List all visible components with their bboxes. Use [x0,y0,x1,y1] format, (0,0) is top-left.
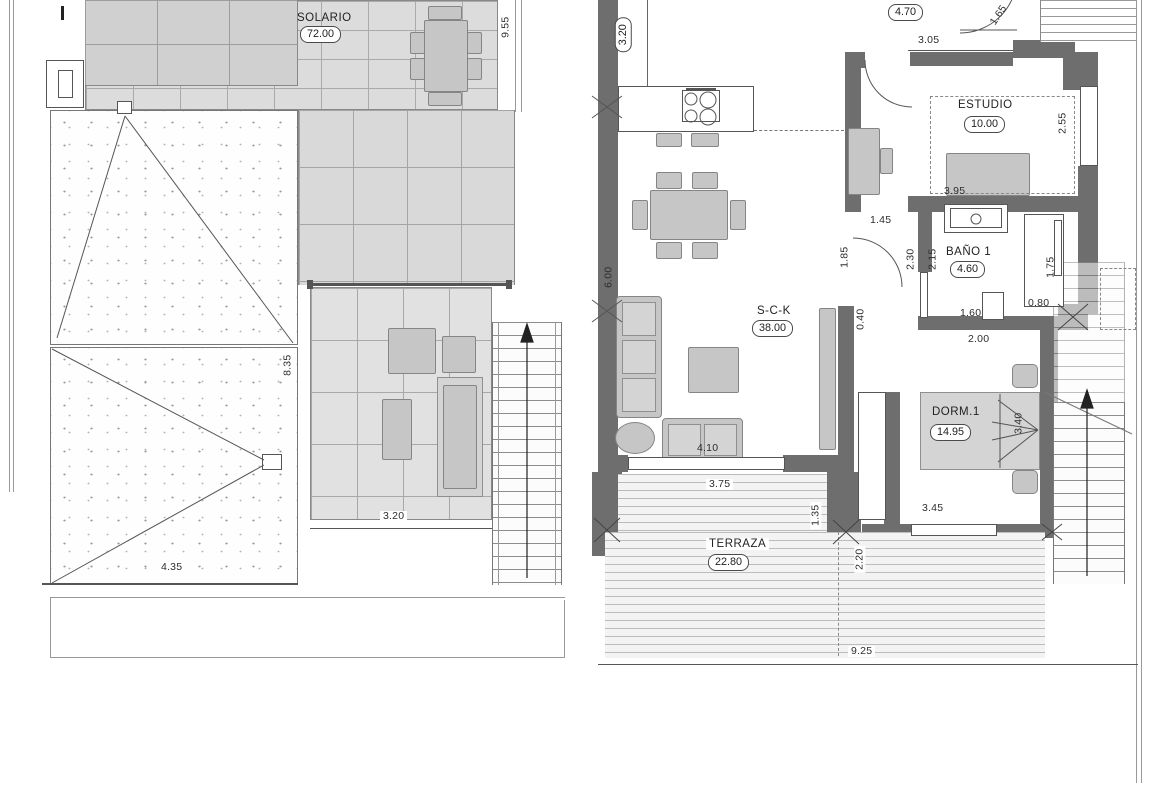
toilet [982,292,1004,320]
bar-stool [656,133,682,147]
room-label-terraza: TERRAZA [706,538,769,550]
stair-rail [555,322,556,585]
dim-9-25: 9.25 [848,646,875,657]
bar-stool [691,133,719,147]
dim-3-75: 3.75 [706,479,733,490]
area-label-terraza: 22.80 [708,554,749,571]
patio-chair [428,92,462,106]
wall-nib [845,196,861,212]
roof-edge-line [42,583,298,585]
sofa-cushion [622,378,656,412]
dim-3-20-top: 3.20 [615,17,632,52]
window-estudio [1080,86,1098,166]
patio-chair [467,32,482,54]
sofa-cushion [622,340,656,374]
dim-1-75: 1.75 [1045,257,1056,278]
lower-floor-outline-top [50,597,565,598]
wall-right-upper [1078,52,1098,86]
dim-2-00: 2.00 [968,334,989,345]
patio-chair [467,58,482,80]
room-label-sck: S-C-K [757,305,791,317]
dim-4-10: 4.10 [697,443,718,454]
patio-chair [410,58,425,80]
window-dorm [911,524,997,536]
plot-border-right-b [521,0,522,112]
dim-line-3-05 [908,50,1013,51]
area-label-sck: 38.00 [752,320,793,337]
vanity-basin [950,208,1002,228]
dim-line-9-25 [598,664,1138,665]
dim-2-30: 2.30 [905,249,916,270]
area-label-estudio: 10.00 [964,116,1005,133]
plot-border-right-outer [1136,0,1137,783]
staircase-right-lower [1053,402,1125,584]
staircase-left [492,322,562,585]
roof-apex-box [117,101,132,114]
dim-3-40: 3.40 [1013,413,1024,434]
exterior-dashed-zone [1100,268,1136,330]
sun-lounger-small [382,399,412,460]
wall-left [598,0,618,470]
glass-railing [310,283,512,286]
plot-border-right-a [515,0,516,112]
dim-0-40: 0.40 [855,309,866,330]
counter-dashed-edge [754,130,844,131]
area-label-solario: 72.00 [300,26,341,43]
dim-1-65: 1.65 [988,4,1009,27]
dining-chair [656,172,682,189]
dim-4-70: 4.70 [888,4,923,21]
entrance-steps [1040,0,1136,42]
dim-9-55: 9.55 [500,17,511,38]
pouf [615,422,655,454]
stair-rail [498,322,499,585]
wall-dorm-left [884,392,900,524]
area-label-bano: 4.60 [950,261,985,278]
plot-border-right-inner [1141,0,1142,783]
room-label-estudio: ESTUDIO [958,99,1013,111]
cooktop [682,90,720,122]
dining-chair [730,200,746,230]
lower-floor-outline-bottom [50,657,565,658]
plot-border-left-inner [13,0,14,492]
lower-floor-outline-right [564,600,565,658]
dining-table [650,190,728,240]
dim-3-05: 3.05 [918,35,939,46]
railing-post [307,280,313,289]
dim-6-00: 6.00 [603,267,614,288]
dining-chair [632,200,648,230]
wall-sck-bottom-left [598,455,628,472]
coffee-table [688,347,739,393]
nightstand [1012,470,1038,494]
nightstand [1012,364,1038,388]
room-label-dorm1: DORM.1 [932,406,980,418]
dim-4-35: 4.35 [158,562,185,573]
roof-apex-box [262,454,282,470]
wall-sck-bottom-right [783,455,838,472]
floor-plan-canvas: SOLARIO 72.00 9.55 3.20 8.35 4.35 [0,0,1170,785]
window-sck [628,457,785,470]
patio-chair [428,6,462,20]
tv-sideboard [819,308,836,450]
room-label-solario: SOLARIO [297,12,352,24]
plot-border-left-outer [9,0,10,492]
patio-table [424,20,468,92]
chimney-flue [58,70,73,98]
sofa-cushion [622,302,656,336]
room-label-bano: BAÑO 1 [946,246,991,258]
closet [858,392,886,520]
dim-2-15: 2.15 [927,249,938,270]
lounge-chair [388,328,436,374]
dim-1-45: 1.45 [870,215,891,226]
dim-8-35: 8.35 [282,352,293,379]
desk [848,128,880,195]
dim-line-3-20 [310,528,492,529]
dim-1-60: 1.60 [960,308,981,319]
dining-chair [692,242,718,259]
dim-0-80: 0.80 [1028,298,1049,309]
dim-3-20-left: 3.20 [380,511,407,522]
dim-2-20: 2.20 [854,546,865,573]
wall-top-b [910,52,1013,66]
plan-right: S-C-K 38.00 ESTUDIO 10.00 BAÑO 1 4.60 DO… [0,0,1170,785]
dining-chair [656,242,682,259]
desk-chair [880,148,893,174]
bath-door-leaf [920,272,928,318]
deck-dashed-joint [838,532,839,656]
railing-post [506,280,512,289]
dim-1-35: 1.35 [810,502,821,529]
dim-2-55: 2.55 [1057,113,1068,134]
wall-mid [838,306,854,472]
dim-1-85: 1.85 [839,247,850,268]
lower-floor-outline-left [50,597,51,658]
sun-lounger-cushion [443,385,477,489]
dim-3-45: 3.45 [922,503,943,514]
dim-3-95: 3.95 [944,186,965,197]
cooktop-back [686,88,716,90]
dining-chair [692,172,718,189]
terraza-deck-lower [605,532,1045,658]
area-label-dorm1: 14.95 [930,424,971,441]
patio-chair [410,32,425,54]
side-table [442,336,476,373]
